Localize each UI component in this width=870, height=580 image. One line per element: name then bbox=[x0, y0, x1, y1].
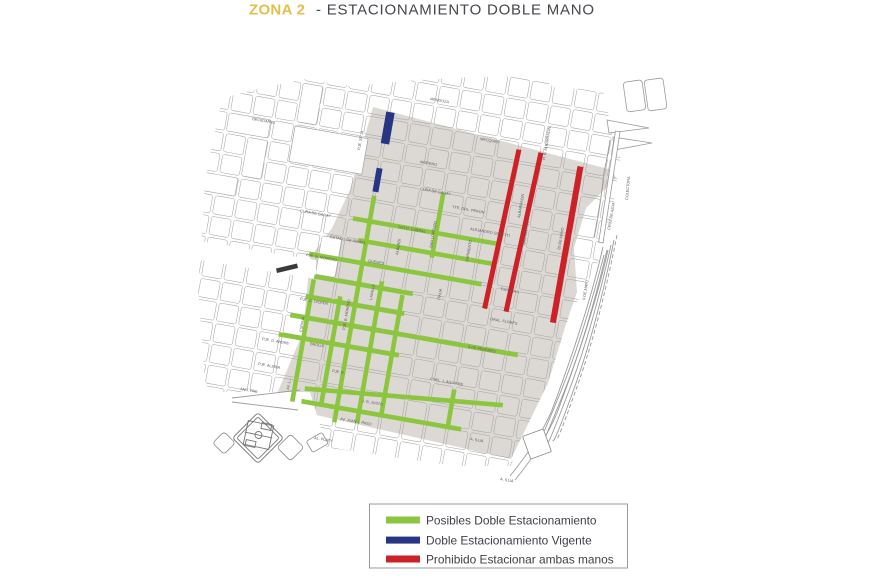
svg-text:- ESTACIONAMIENTO DOBLE MANO: - ESTACIONAMIENTO DOBLE MANO bbox=[316, 2, 595, 19]
svg-text:Doble Estacionamiento Vigente: Doble Estacionamiento Vigente bbox=[426, 534, 592, 548]
svg-text:Prohibido Estacionar ambas man: Prohibido Estacionar ambas manos bbox=[426, 553, 614, 567]
svg-text:ZONA 2: ZONA 2 bbox=[249, 2, 305, 19]
svg-text:Posibles Doble Estacionamiento: Posibles Doble Estacionamiento bbox=[426, 514, 597, 528]
